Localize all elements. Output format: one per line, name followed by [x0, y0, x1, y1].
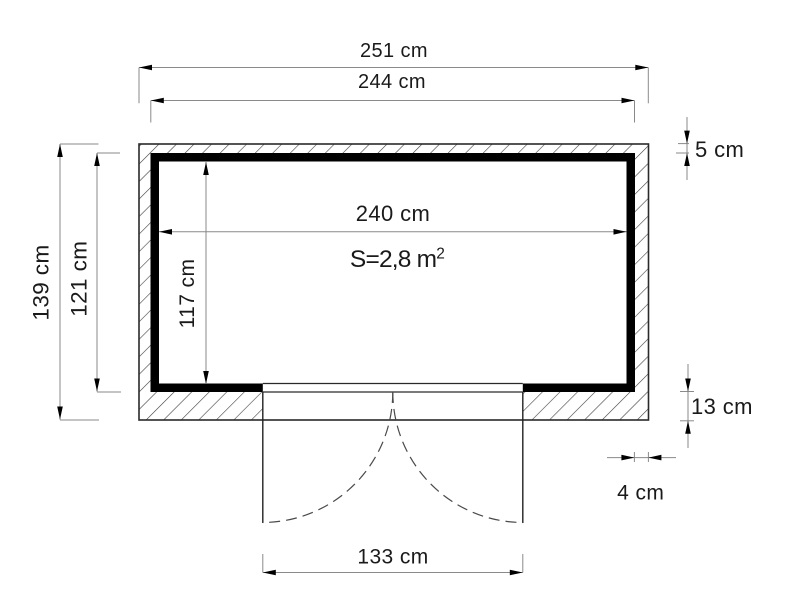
svg-text:244 cm: 244 cm — [358, 71, 426, 93]
svg-text:S=2,8 m2: S=2,8 m2 — [350, 246, 444, 274]
svg-text:133 cm: 133 cm — [357, 546, 428, 569]
svg-text:117 cm: 117 cm — [176, 259, 199, 329]
svg-text:4 cm: 4 cm — [617, 482, 664, 505]
svg-text:139 cm: 139 cm — [29, 244, 54, 320]
svg-text:5 cm: 5 cm — [695, 137, 744, 162]
svg-text:13 cm: 13 cm — [691, 394, 753, 419]
svg-text:121 cm: 121 cm — [67, 241, 92, 317]
svg-text:251 cm: 251 cm — [360, 40, 428, 62]
svg-text:240 cm: 240 cm — [356, 201, 431, 226]
